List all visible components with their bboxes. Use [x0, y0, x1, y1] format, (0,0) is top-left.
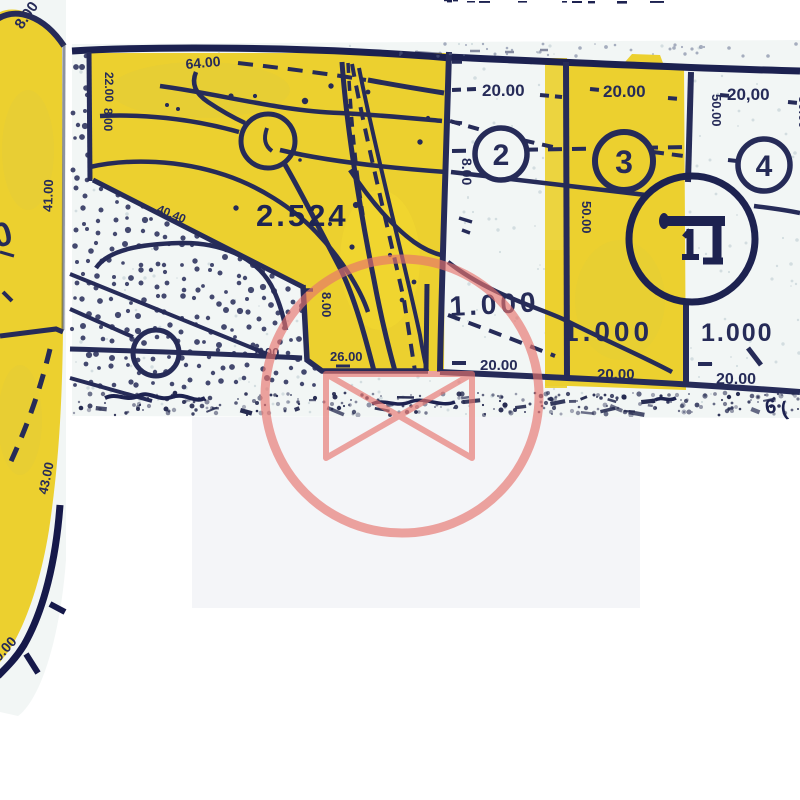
svg-text:22.00: 22.00 [102, 72, 116, 102]
svg-text:1.000: 1.000 [701, 319, 774, 347]
svg-text:20.00: 20.00 [597, 366, 635, 383]
svg-text:4: 4 [756, 150, 773, 183]
svg-text:1.000: 1.000 [563, 316, 653, 347]
svg-text:50.00: 50.00 [709, 94, 724, 127]
svg-text:20.00: 20.00 [603, 82, 646, 101]
svg-text:20.00: 20.00 [482, 81, 525, 100]
svg-text:2: 2 [493, 139, 510, 172]
svg-text:26.00: 26.00 [330, 349, 363, 364]
svg-text:50.00: 50.00 [579, 201, 594, 234]
svg-text:64.00: 64.00 [185, 53, 222, 72]
svg-text:8.00: 8.00 [101, 108, 115, 132]
svg-text:41.00: 41.00 [40, 179, 56, 212]
svg-text:8.00: 8.00 [459, 158, 475, 185]
svg-text:20,00: 20,00 [727, 85, 770, 104]
svg-text:8.00: 8.00 [319, 292, 334, 317]
svg-text:20.00: 20.00 [480, 357, 518, 374]
svg-text:2.524: 2.524 [256, 198, 349, 233]
svg-text:20.00: 20.00 [716, 371, 756, 388]
svg-text:50.00: 50.00 [796, 96, 800, 129]
svg-text:3: 3 [615, 144, 633, 180]
